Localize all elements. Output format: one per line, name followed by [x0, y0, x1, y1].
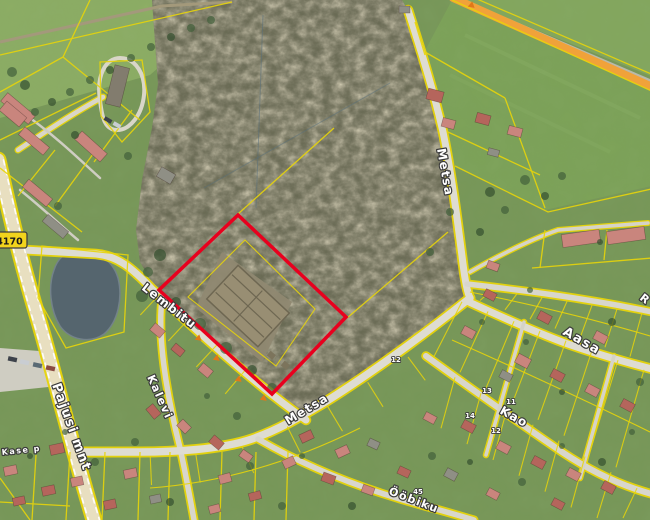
tree	[597, 239, 603, 245]
tree	[246, 462, 254, 470]
tree	[204, 393, 210, 399]
tree	[485, 187, 495, 197]
tree	[66, 88, 74, 96]
tree	[598, 458, 606, 466]
tree	[428, 452, 436, 460]
pond	[51, 252, 120, 340]
tree	[559, 389, 565, 395]
tree	[86, 76, 94, 84]
tree	[207, 16, 215, 24]
tree	[446, 208, 454, 216]
tree	[467, 459, 473, 465]
tree	[278, 502, 286, 510]
house-number: 11	[506, 398, 516, 406]
tree	[501, 206, 509, 214]
tree	[166, 498, 174, 506]
tree	[520, 175, 530, 185]
tree	[348, 502, 356, 510]
tree	[20, 80, 30, 90]
house-number: 14	[465, 412, 475, 420]
tree	[523, 339, 529, 345]
tree	[559, 443, 565, 449]
tree	[476, 228, 484, 236]
tree	[131, 438, 139, 446]
tree	[147, 43, 155, 51]
building	[399, 6, 410, 13]
tree	[426, 248, 434, 256]
tree	[608, 318, 616, 326]
house-number: 12	[391, 356, 401, 364]
house-number: 45	[413, 488, 423, 496]
tree	[48, 98, 56, 106]
tree	[124, 152, 132, 160]
tree	[558, 172, 566, 180]
tree	[106, 66, 114, 74]
road-number-text: 4170	[0, 237, 23, 248]
map-viewport[interactable]: 4170 LembituKaleviPajusi mntMetsaMetsaAa…	[0, 0, 650, 520]
tree	[479, 319, 485, 325]
tree	[54, 202, 62, 210]
tree	[629, 429, 635, 435]
tree	[187, 24, 195, 32]
road-number-badge: 4170	[0, 232, 27, 248]
tree	[527, 287, 533, 293]
tree	[7, 67, 17, 77]
tree	[31, 108, 39, 116]
house-number: 12	[491, 427, 501, 435]
tree	[233, 412, 241, 420]
house-number: 13	[482, 387, 492, 395]
tree	[518, 478, 526, 486]
tree	[127, 54, 135, 62]
tree	[636, 378, 644, 386]
tree	[143, 267, 153, 277]
tree	[167, 33, 175, 41]
tree	[71, 131, 79, 139]
tree	[541, 192, 549, 200]
tree	[299, 453, 305, 459]
tree	[154, 249, 166, 261]
